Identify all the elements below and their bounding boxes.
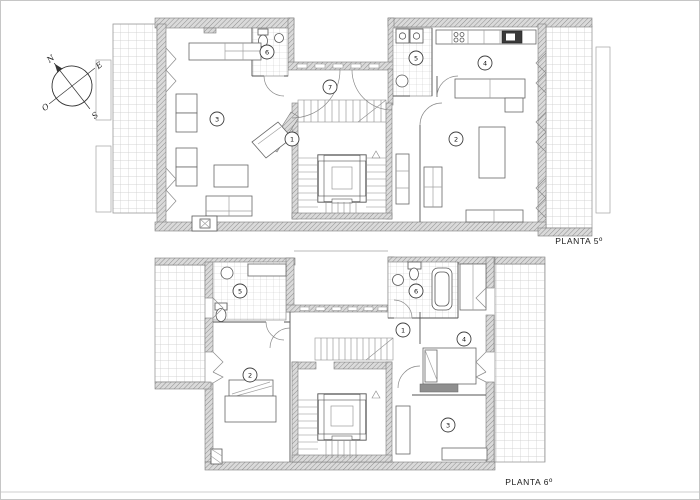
armchair [176, 113, 197, 132]
terrace-left [113, 24, 157, 213]
svg-text:4: 4 [483, 59, 487, 67]
dining-table [479, 127, 505, 178]
terrace-left-p6 [155, 265, 205, 382]
armchair [176, 148, 197, 167]
room-marker-p6-1: 1 [396, 323, 410, 337]
entry-door-swings [292, 70, 392, 118]
svg-text:2: 2 [454, 135, 458, 143]
room-marker-p6-5: 5 [233, 284, 247, 298]
svg-text:2: 2 [248, 371, 252, 379]
terrace-right [546, 26, 592, 228]
chimney-symbol [192, 216, 217, 231]
room-marker-p6-2: 2 [243, 368, 257, 382]
staircase-upper-flight [298, 100, 386, 122]
staircase-upper-flight-p6 [315, 338, 393, 360]
wc-room [252, 28, 288, 96]
floor-plan-drawing: N E S O [0, 0, 700, 500]
room-marker-p5-6: 6 [260, 45, 274, 59]
laundry-sink-symbol [396, 75, 408, 87]
compass-south-label: S [90, 110, 100, 121]
svg-text:3: 3 [215, 115, 219, 123]
armchair [176, 94, 197, 113]
plan-label-planta-6: PLANTA 6º [505, 477, 553, 487]
room-marker-p6-3: 3 [441, 418, 455, 432]
svg-text:6: 6 [414, 287, 418, 295]
room-marker-p5-2: 2 [449, 132, 463, 146]
room-marker-p6-6: 6 [409, 284, 423, 298]
hall-cabinet [396, 154, 409, 204]
patio-louver-band-p6 [294, 251, 388, 311]
compass-north-label: N [44, 52, 57, 65]
bedroom-2 [211, 328, 290, 464]
sink-symbol [393, 275, 404, 286]
elevator [318, 155, 366, 203]
shelf [420, 384, 458, 392]
terrace-right-p6 [495, 264, 545, 462]
low-shelf [442, 448, 487, 460]
coffee-table [214, 165, 248, 187]
desk [396, 406, 410, 454]
toilet-symbol [258, 29, 268, 35]
bed [225, 396, 276, 422]
svg-text:3: 3 [446, 421, 450, 429]
svg-text:5: 5 [414, 54, 418, 62]
sink-symbol [221, 267, 233, 279]
svg-text:7: 7 [328, 83, 332, 91]
room-marker-p5-7: 7 [323, 80, 337, 94]
room-marker-p5-1: 1 [285, 132, 299, 146]
room-marker-p5-5: 5 [409, 51, 423, 65]
duct-symbol [211, 449, 222, 464]
floor-plan-planta-5: 1 2 3 4 5 6 7 PLANTA 5º [96, 18, 610, 246]
dining-room [396, 103, 523, 222]
svg-text:1: 1 [290, 135, 294, 143]
elevator-p6 [318, 394, 366, 440]
svg-text:1: 1 [401, 326, 405, 334]
armchair [176, 167, 197, 186]
svg-text:5: 5 [238, 287, 242, 295]
bathroom-5 [213, 262, 290, 462]
vanity-counter [248, 264, 286, 276]
blueprint-page: N E S O [0, 0, 700, 500]
kitchen [436, 30, 536, 112]
balcony-rail-right [596, 47, 610, 213]
sideboard [466, 210, 523, 222]
svg-text:4: 4 [462, 335, 466, 343]
room-marker-p5-3: 3 [210, 112, 224, 126]
balcony-rail-left-2 [96, 146, 111, 212]
floor-plan-planta-6: 1 2 3 4 5 6 PLANTA 6º [155, 251, 553, 487]
room-marker-p6-4: 4 [457, 332, 471, 346]
north-needle [52, 62, 62, 72]
svg-text:6: 6 [265, 48, 269, 56]
sink-symbol [275, 34, 284, 43]
room-marker-p5-4: 4 [478, 56, 492, 70]
compass-east-label: E [93, 60, 104, 71]
plan-label-planta-5: PLANTA 5º [555, 236, 603, 246]
